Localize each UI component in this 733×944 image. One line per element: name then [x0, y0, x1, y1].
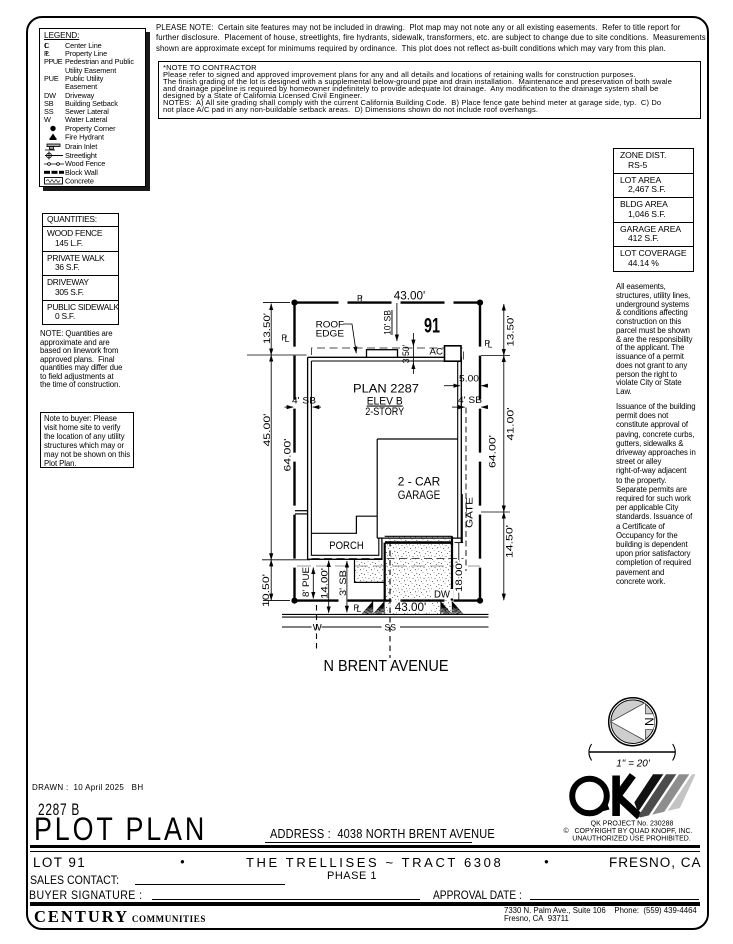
svg-text:N BRENT AVENUE: N BRENT AVENUE: [324, 658, 449, 675]
svg-text:91: 91: [424, 315, 440, 338]
svg-text:© COPYRIGHT BY QUAD KNOPF, I: © COPYRIGHT BY QUAD KNOPF, INC.: [564, 827, 693, 835]
svg-text:10.50': 10.50': [261, 574, 271, 607]
svg-text:41.00': 41.00': [506, 407, 516, 440]
svg-text:4' SB: 4' SB: [292, 396, 316, 407]
svg-text:64.00': 64.00': [283, 438, 293, 471]
svg-text:AC: AC: [430, 347, 444, 358]
svg-text:3.50': 3.50': [401, 345, 412, 364]
svg-text:GATE: GATE: [465, 497, 475, 528]
svg-text:PL: PL: [354, 603, 362, 615]
svg-text:10' SB: 10' SB: [383, 310, 394, 335]
svg-text:W: W: [313, 623, 322, 634]
svg-text:PL: PL: [357, 293, 365, 305]
svg-text:4' SB: 4' SB: [458, 395, 482, 406]
svg-text:13.50': 13.50': [506, 315, 516, 346]
svg-text:14.50': 14.50': [505, 525, 515, 558]
svg-text:SS: SS: [385, 623, 397, 634]
svg-text:3' SB: 3' SB: [338, 570, 349, 596]
svg-text:DW: DW: [434, 590, 451, 601]
svg-text:QK PROJECT No. 230288: QK PROJECT No. 230288: [591, 821, 674, 828]
svg-text:64.00': 64.00': [487, 435, 497, 468]
svg-text:18.00': 18.00': [454, 561, 465, 592]
svg-text:2-STORY: 2-STORY: [365, 406, 405, 418]
svg-text:PL: PL: [485, 338, 493, 350]
svg-text:N: N: [642, 717, 656, 726]
svg-text:43.00': 43.00': [395, 602, 427, 614]
svg-text:GARAGE: GARAGE: [398, 490, 441, 502]
svg-text:UNAUTHORIZED USE PROHIBITED.: UNAUTHORIZED USE PROHIBITED.: [572, 836, 691, 843]
svg-text:PL: PL: [282, 333, 290, 345]
svg-text:EDGE: EDGE: [316, 329, 345, 340]
svg-text:2 - CAR: 2 - CAR: [398, 477, 441, 489]
svg-text:13.50': 13.50': [262, 313, 272, 344]
svg-text:5.00': 5.00': [459, 374, 481, 385]
svg-text:PLAN 2287: PLAN 2287: [353, 382, 419, 396]
svg-text:43.00': 43.00': [394, 291, 426, 303]
svg-text:14.00': 14.00': [320, 568, 331, 599]
svg-text:PORCH: PORCH: [329, 540, 364, 552]
svg-text:8' PUE: 8' PUE: [301, 567, 312, 597]
svg-text:45.00': 45.00': [262, 413, 272, 446]
